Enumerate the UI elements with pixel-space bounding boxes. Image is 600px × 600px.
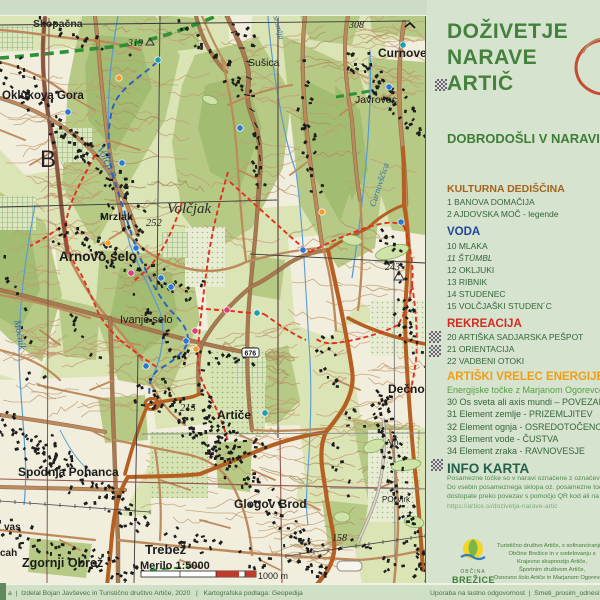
svg-text:Volčjak: Volčjak bbox=[167, 201, 211, 217]
svg-text:Sušica: Sušica bbox=[248, 57, 280, 69]
svg-text:158: 158 bbox=[332, 533, 347, 544]
svg-text:Zgornji Obrež: Zgornji Obrež bbox=[22, 556, 103, 570]
svg-text:POcvirk: POcvirk bbox=[382, 495, 411, 504]
svg-text:Arh: Arh bbox=[386, 438, 398, 447]
svg-text:1000 m: 1000 m bbox=[258, 571, 288, 581]
svg-text:Skopačna: Skopačna bbox=[33, 18, 83, 30]
svg-text:B: B bbox=[40, 146, 56, 173]
svg-text:Trebež: Trebež bbox=[145, 542, 187, 557]
svg-text:Glogov Brod: Glogov Brod bbox=[234, 497, 307, 511]
svg-text:Artiče: Artiče bbox=[217, 408, 251, 422]
svg-text:Arnovo selo: Arnovo selo bbox=[59, 249, 137, 264]
svg-text:215: 215 bbox=[180, 403, 196, 414]
svg-text:308: 308 bbox=[348, 20, 364, 31]
svg-text:Curnovec: Curnovec bbox=[378, 46, 425, 60]
svg-text:676: 676 bbox=[245, 351, 257, 358]
svg-text:Merilo 1:5000: Merilo 1:5000 bbox=[140, 560, 210, 572]
svg-text:Dečno: Dečno bbox=[388, 382, 425, 396]
svg-text:319: 319 bbox=[127, 38, 143, 49]
svg-text:Javrovec: Javrovec bbox=[355, 94, 397, 106]
svg-text:243: 243 bbox=[385, 262, 400, 273]
svg-text:252: 252 bbox=[146, 218, 163, 229]
svg-text:Oklukova Gora: Oklukova Gora bbox=[2, 90, 84, 102]
svg-text:Spodnja Pohanca: Spodnja Pohanca bbox=[18, 465, 119, 479]
svg-text:Mrzlak: Mrzlak bbox=[100, 211, 133, 223]
svg-text:cah: cah bbox=[0, 548, 17, 559]
svg-text:Ivanje selo: Ivanje selo bbox=[120, 314, 173, 326]
svg-text:vas: vas bbox=[4, 522, 21, 533]
